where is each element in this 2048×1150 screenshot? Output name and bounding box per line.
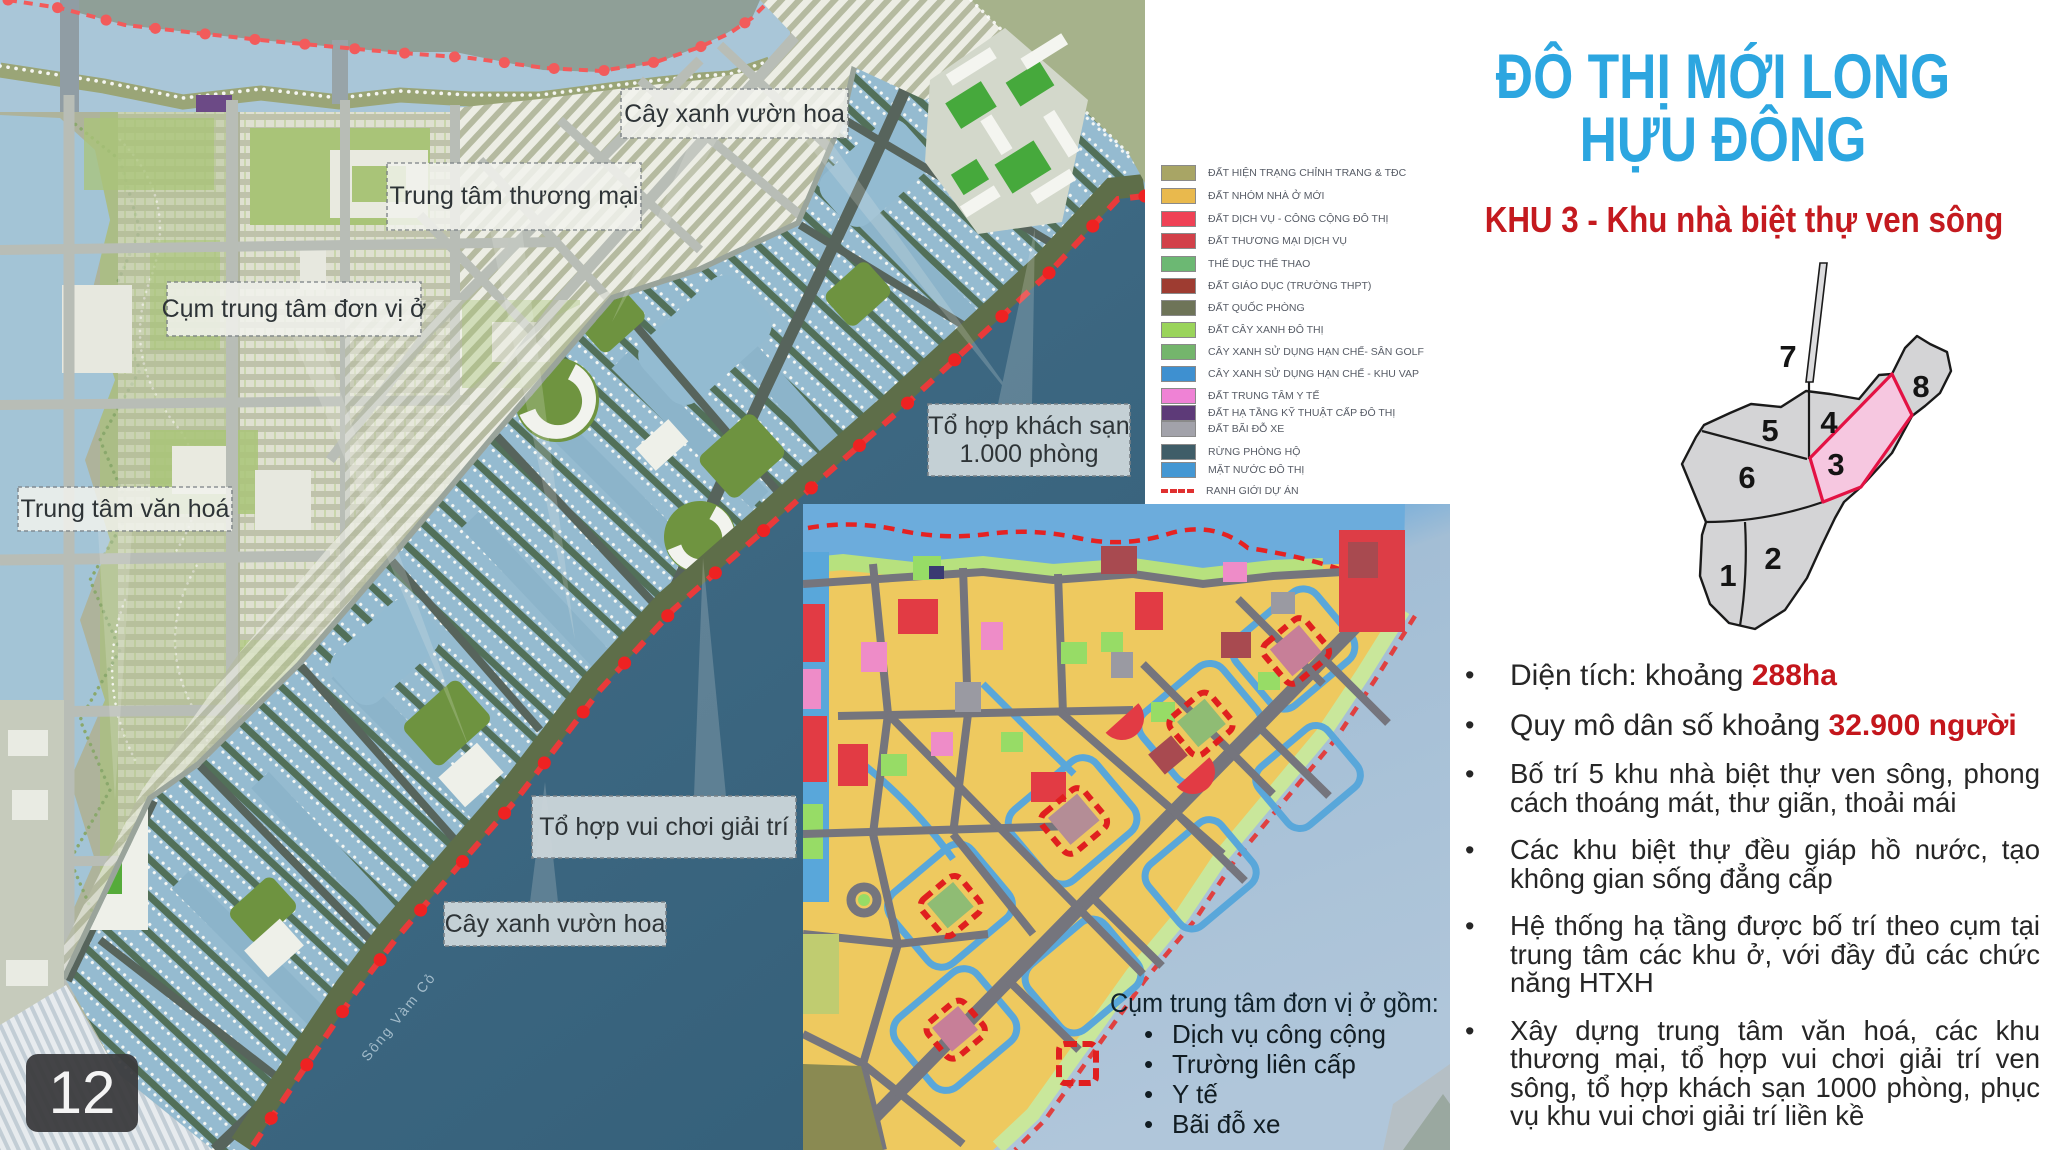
svg-text:Trung tâm thương mại: Trung tâm thương mại xyxy=(390,182,639,210)
svg-text:8: 8 xyxy=(1912,369,1929,404)
svg-text:12: 12 xyxy=(49,1059,116,1126)
svg-text:Cây xanh vườn hoa: Cây xanh vườn hoa xyxy=(445,910,666,938)
svg-text:1: 1 xyxy=(1719,558,1736,593)
svg-text:4: 4 xyxy=(1820,405,1838,440)
svg-text:1.000 phòng: 1.000 phòng xyxy=(959,440,1098,468)
svg-text:7: 7 xyxy=(1779,339,1796,374)
svg-text:Cây xanh vườn hoa: Cây xanh vườn hoa xyxy=(624,100,845,128)
svg-text:2: 2 xyxy=(1764,541,1781,576)
svg-text:3: 3 xyxy=(1827,447,1844,482)
svg-text:Trung tâm văn hoá: Trung tâm văn hoá xyxy=(21,495,230,523)
svg-text:Tổ hợp khách sạn: Tổ hợp khách sạn xyxy=(928,412,1129,440)
svg-text:Cụm trung tâm đơn vị ở: Cụm trung tâm đơn vị ở xyxy=(162,295,427,323)
svg-text:Tổ hợp vui chơi giải trí: Tổ hợp vui chơi giải trí xyxy=(539,813,789,841)
svg-text:6: 6 xyxy=(1738,460,1755,495)
svg-text:5: 5 xyxy=(1761,413,1778,448)
